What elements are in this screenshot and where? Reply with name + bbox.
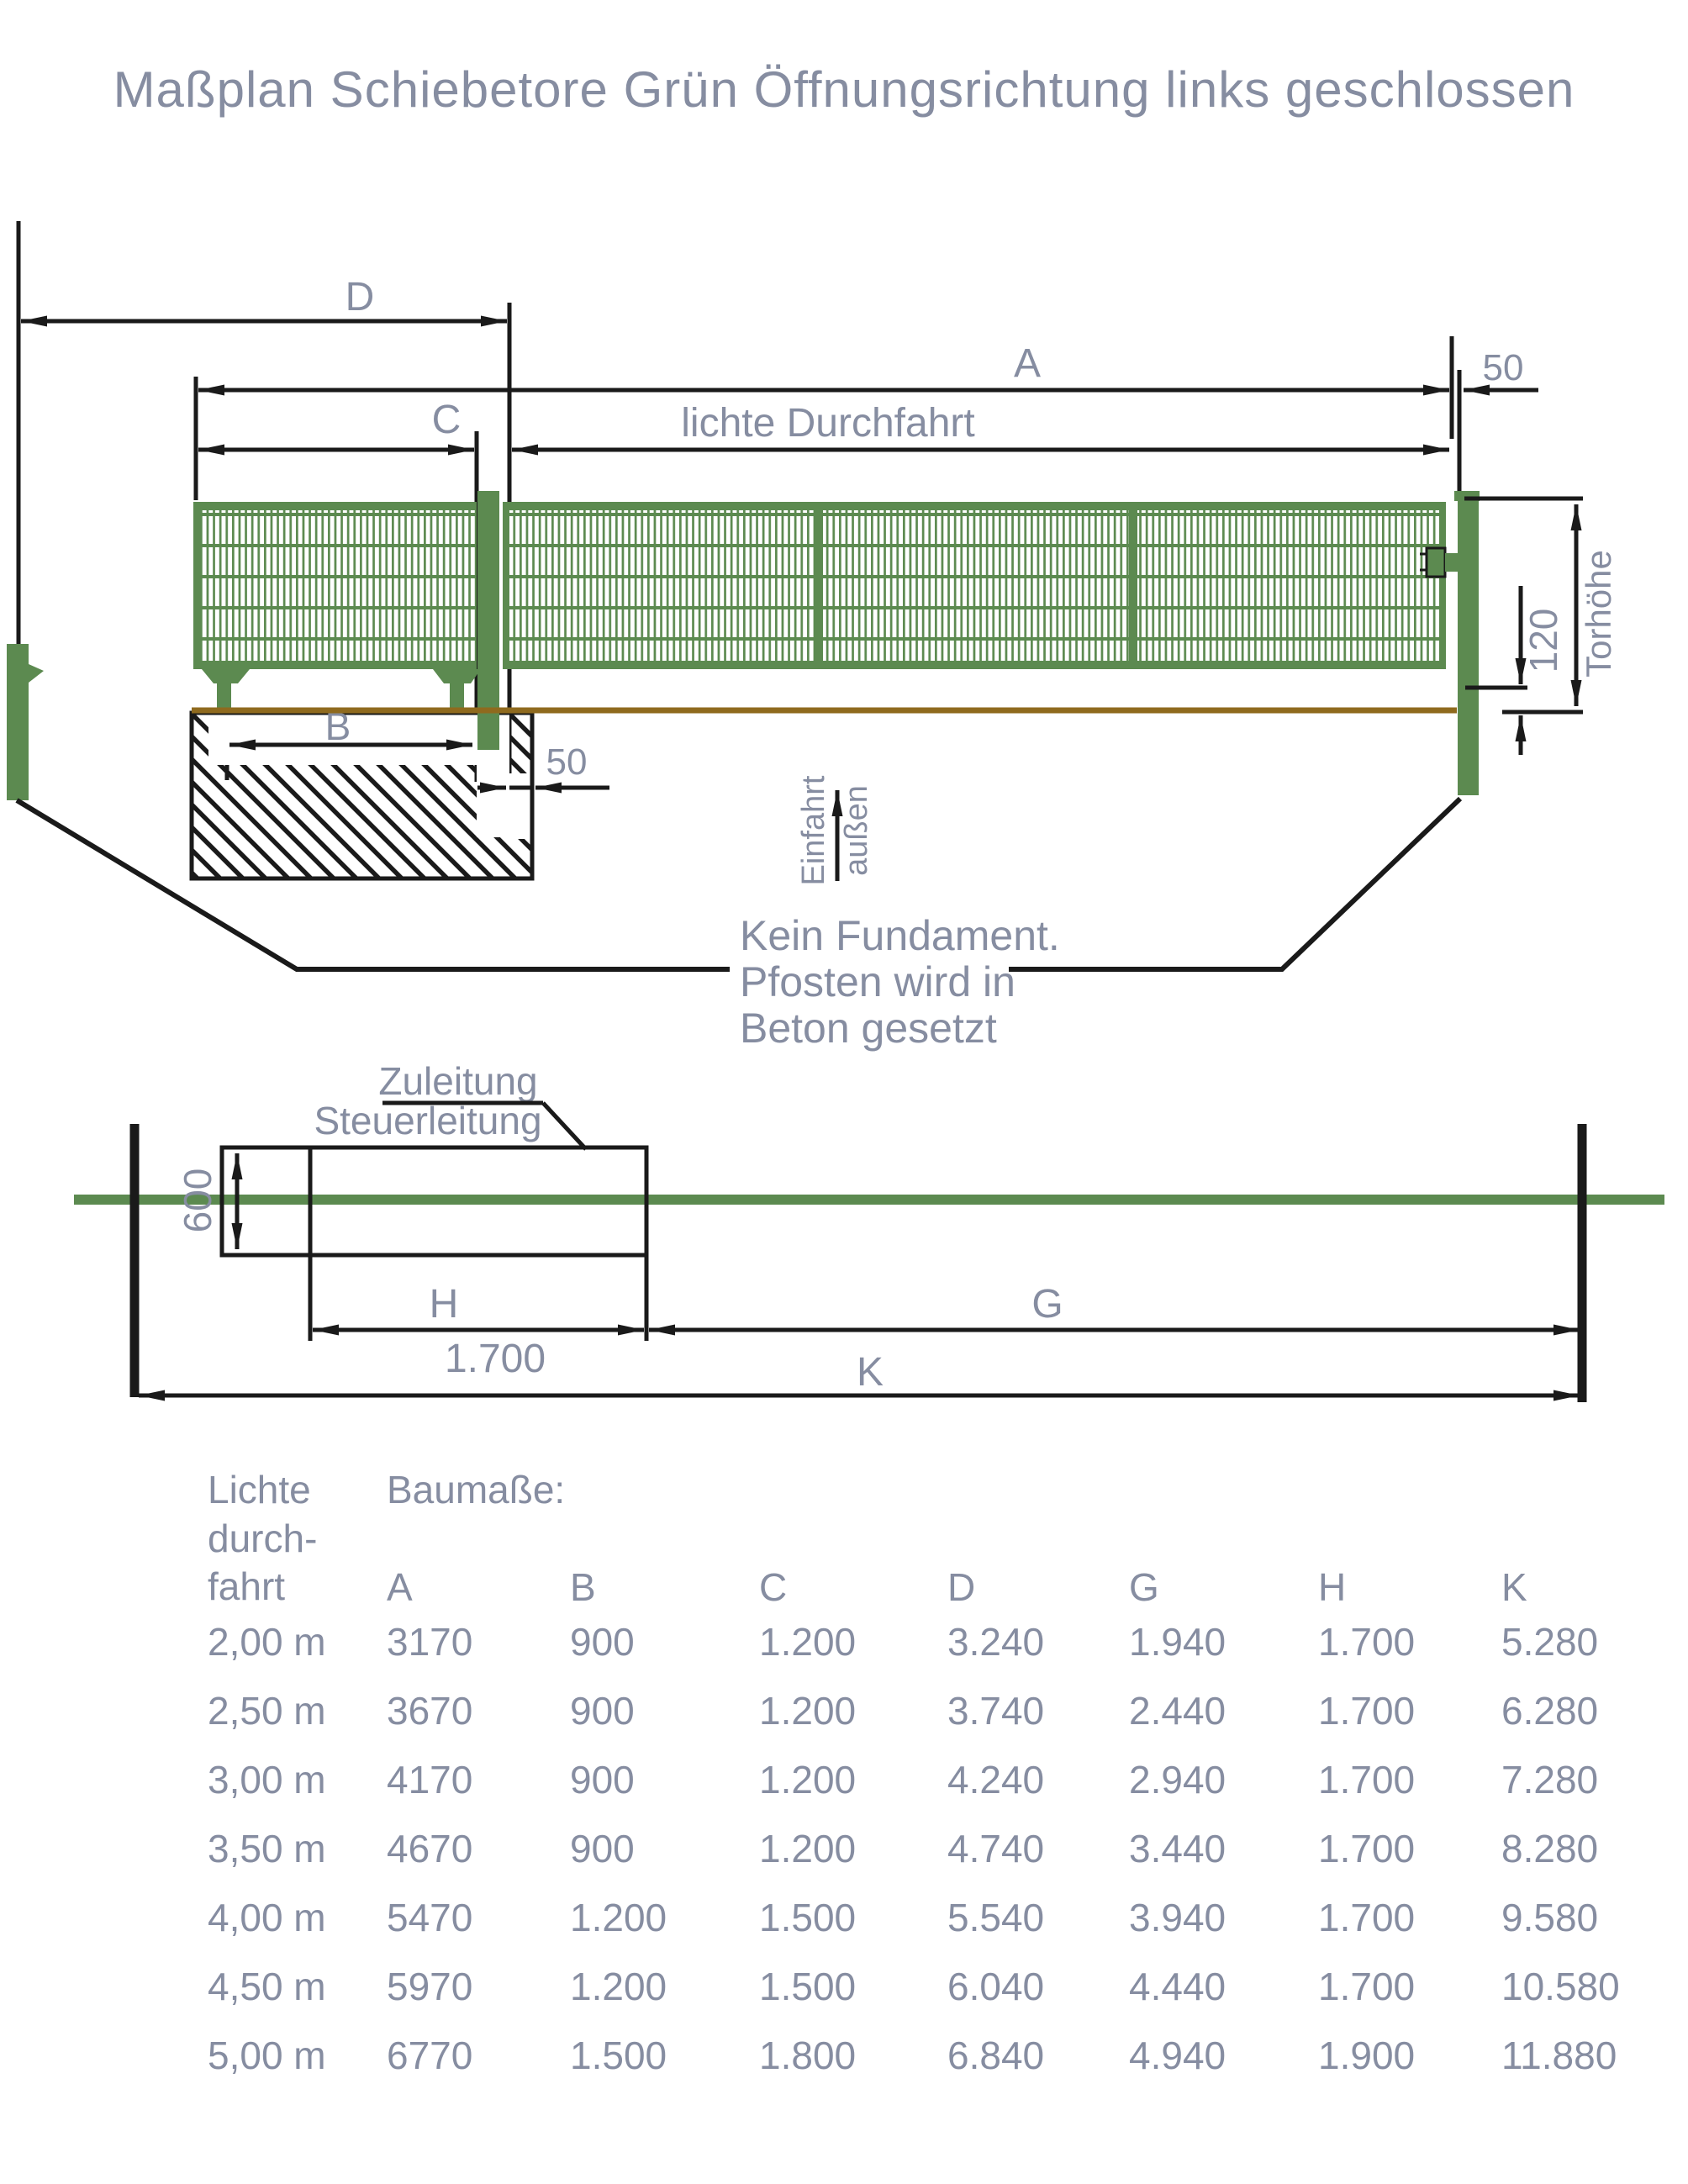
table-cell: 900 xyxy=(570,1607,635,1676)
table-cell: 3.740 xyxy=(947,1676,1044,1745)
table-cell: 1.700 xyxy=(1318,1607,1415,1676)
masplan-page: Maßplan Schiebetore Grün Öffnungsrichtun… xyxy=(0,0,1688,2184)
table-cell: 6.840 xyxy=(947,2021,1044,2090)
table-cell: 3.240 xyxy=(947,1607,1044,1676)
table-cell: 6.280 xyxy=(1501,1676,1598,1745)
table-cell: 1.200 xyxy=(759,1607,856,1676)
table-cell: 1.200 xyxy=(759,1814,856,1883)
table-cell: 3170 xyxy=(387,1607,472,1676)
table-row: 5,00 m 6770 1.500 1.800 6.840 4.940 1.90… xyxy=(0,2021,1688,2090)
table-rows: 2,00 m 3170 900 1.200 3.240 1.940 1.700 … xyxy=(0,1607,1688,2090)
table-cell: 6.040 xyxy=(947,1952,1044,2021)
table-cell-width: 3,50 m xyxy=(208,1814,326,1883)
table-cell: 2.440 xyxy=(1129,1676,1226,1745)
table-cell: 1.200 xyxy=(570,1952,667,2021)
table-cell-width: 4,00 m xyxy=(208,1883,326,1952)
table-cell: 4670 xyxy=(387,1814,472,1883)
table-cell: 9.580 xyxy=(1501,1883,1598,1952)
table-cell: 1.500 xyxy=(570,2021,667,2090)
table-cell: 1.800 xyxy=(759,2021,856,2090)
table-cell: 900 xyxy=(570,1814,635,1883)
table-cell: 3.440 xyxy=(1129,1814,1226,1883)
table-cell: 4.440 xyxy=(1129,1952,1226,2021)
rowheader-line: Lichte xyxy=(208,1466,317,1515)
table-cell: 1.700 xyxy=(1318,1952,1415,2021)
table-cell: 8.280 xyxy=(1501,1814,1598,1883)
table-cell: 1.200 xyxy=(570,1883,667,1952)
table-cell: 4170 xyxy=(387,1745,472,1814)
table-cell: 5470 xyxy=(387,1883,472,1952)
table-cell-width: 3,00 m xyxy=(208,1745,326,1814)
table-cell: 900 xyxy=(570,1676,635,1745)
table-cell: 900 xyxy=(570,1745,635,1814)
table-cell-width: 4,50 m xyxy=(208,1952,326,2021)
table-cell: 1.200 xyxy=(759,1676,856,1745)
table-cell: 4.740 xyxy=(947,1814,1044,1883)
table-cell: 1.700 xyxy=(1318,1883,1415,1952)
table-row: 2,00 m 3170 900 1.200 3.240 1.940 1.700 … xyxy=(0,1607,1688,1676)
table-cell: 1.940 xyxy=(1129,1607,1226,1676)
dimensions-table: Lichte durch- fahrt Baumaße: A B C D G H… xyxy=(0,0,1688,2184)
table-row: 4,50 m 5970 1.200 1.500 6.040 4.440 1.70… xyxy=(0,1952,1688,2021)
table-cell: 1.700 xyxy=(1318,1745,1415,1814)
table-cell: 1.900 xyxy=(1318,2021,1415,2090)
table-cell: 2.940 xyxy=(1129,1745,1226,1814)
table-cell: 1.700 xyxy=(1318,1676,1415,1745)
table-cell: 6770 xyxy=(387,2021,472,2090)
table-cell-width: 5,00 m xyxy=(208,2021,326,2090)
table-cell: 5.540 xyxy=(947,1883,1044,1952)
table-cell: 3670 xyxy=(387,1676,472,1745)
table-row: 2,50 m 3670 900 1.200 3.740 2.440 1.700 … xyxy=(0,1676,1688,1745)
table-row: 3,00 m 4170 900 1.200 4.240 2.940 1.700 … xyxy=(0,1745,1688,1814)
table-row: 4,00 m 5470 1.200 1.500 5.540 3.940 1.70… xyxy=(0,1883,1688,1952)
table-cell: 4.940 xyxy=(1129,2021,1226,2090)
table-cell-width: 2,00 m xyxy=(208,1607,326,1676)
table-cell: 1.500 xyxy=(759,1952,856,2021)
table-group-header: Baumaße: xyxy=(387,1466,565,1515)
table-cell: 1.500 xyxy=(759,1883,856,1952)
table-row: 3,50 m 4670 900 1.200 4.740 3.440 1.700 … xyxy=(0,1814,1688,1883)
table-cell: 10.580 xyxy=(1501,1952,1620,2021)
table-cell: 5.280 xyxy=(1501,1607,1598,1676)
table-cell: 1.200 xyxy=(759,1745,856,1814)
table-cell: 3.940 xyxy=(1129,1883,1226,1952)
table-cell: 1.700 xyxy=(1318,1814,1415,1883)
table-cell: 4.240 xyxy=(947,1745,1044,1814)
table-cell: 5970 xyxy=(387,1952,472,2021)
table-cell: 11.880 xyxy=(1501,2021,1617,2090)
table-cell-width: 2,50 m xyxy=(208,1676,326,1745)
table-cell: 7.280 xyxy=(1501,1745,1598,1814)
